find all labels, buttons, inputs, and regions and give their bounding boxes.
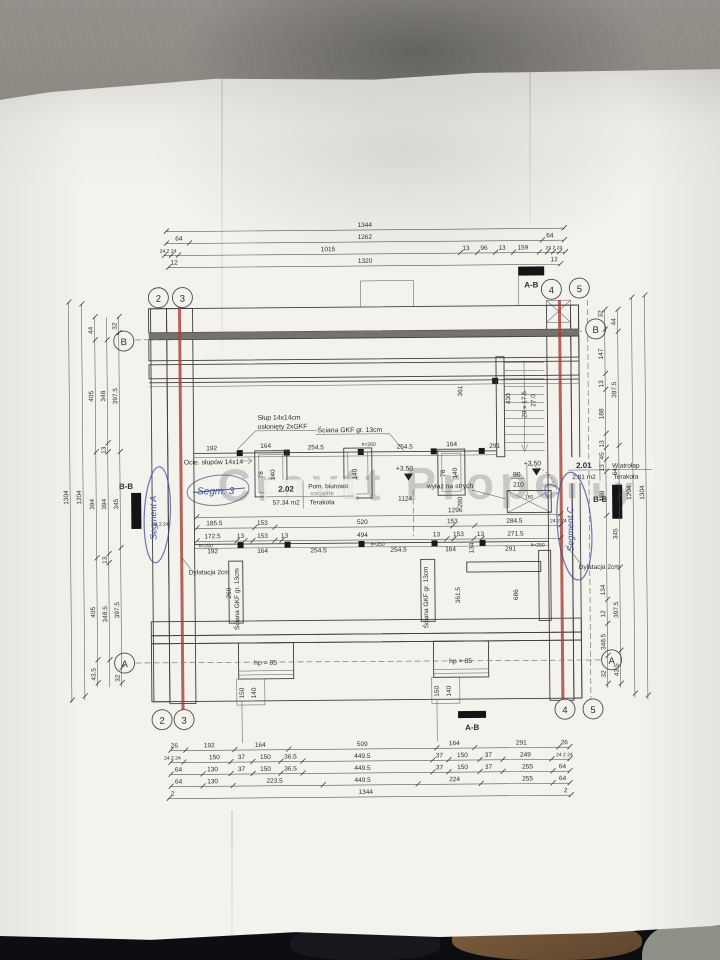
dim: 37 <box>436 764 444 771</box>
dim: 397.5 <box>114 602 121 619</box>
window-dim: 140 <box>251 687 258 698</box>
dim: 150 <box>260 766 271 773</box>
room-area: 57.34 m2 <box>273 500 301 507</box>
dim: 1015 <box>321 246 336 253</box>
bottom-window-2: hp = 85 150 140 <box>431 641 489 703</box>
door-width: 90 <box>513 472 521 479</box>
dim: 449.5 <box>354 777 371 784</box>
dim: 13 <box>101 446 108 454</box>
dim: 13 <box>599 464 606 472</box>
dim: 130 <box>207 766 218 773</box>
dim: 64 <box>175 779 183 786</box>
dim: 1320 <box>358 258 373 265</box>
dim: 255 <box>522 763 533 770</box>
dim: 96 <box>480 245 488 252</box>
dim: 291 <box>505 546 516 553</box>
dim: 397.5 <box>112 388 119 405</box>
callout-leader <box>316 434 404 452</box>
corridor-wall <box>151 618 581 636</box>
roof-hatch-outline <box>360 281 413 307</box>
dim: 394 <box>89 499 96 510</box>
dim: 284.5 <box>506 518 523 525</box>
dim: 64 <box>546 232 554 239</box>
grid-bubble-3: 3 <box>180 294 185 305</box>
dim: 271.5 <box>507 531 524 538</box>
dim: 394 <box>101 498 108 509</box>
attic-hatch-callout: wyłaz na strych <box>426 483 474 490</box>
dim: 1262 <box>358 234 373 241</box>
dim: 188 <box>598 408 605 419</box>
dilatation-callout-right: Dylatacja 2cm <box>579 564 620 571</box>
dim: 405 <box>90 606 97 617</box>
insulation-callout: Ocie. słupów 14x14 <box>184 459 244 467</box>
grid-bubble-A: A <box>121 659 128 670</box>
column-callout-line1: Słup 14x14cm <box>257 415 300 422</box>
room-table-202: 2.02 57.34 m2 Pom. biurowo socjalne Tera… <box>264 479 356 509</box>
dim: 164 <box>257 548 268 555</box>
handwriting-segment-c: Segment C <box>565 506 575 552</box>
dim: 397.5 <box>611 381 618 398</box>
dim: 26 <box>561 739 569 746</box>
dim: 1304 <box>63 490 70 505</box>
stair-tread-label: 27.0 <box>530 394 537 407</box>
dim: 130 <box>207 778 218 785</box>
window-dim: 150 <box>434 686 441 697</box>
dim: 150 <box>209 754 220 761</box>
dim: 397.5 <box>613 601 620 618</box>
gkf-wall-callout: Ściana GKF gr. 13cm <box>318 425 383 435</box>
dim: 2 <box>564 787 568 794</box>
dim: 153 <box>447 518 458 525</box>
dim: 13 <box>102 556 109 564</box>
window-dim: 150 <box>239 687 246 698</box>
height-note: h=260 <box>362 442 376 448</box>
level-label: +3.50 <box>524 460 541 467</box>
grid-bubble-Br: B <box>592 325 598 336</box>
v-dim: 280 <box>457 496 464 507</box>
niche-dim: 140 <box>352 468 359 479</box>
v-dim: 260 <box>226 587 233 598</box>
dim: 12 <box>550 256 558 263</box>
dim: 24 2 24 <box>160 249 177 255</box>
dim: 12 <box>600 610 607 618</box>
section-label-top: A-B <box>524 280 539 289</box>
bottom-window-1: hp = 85 150 140 <box>236 643 294 705</box>
niche-dim: 78 <box>258 471 265 479</box>
handwriting-segment-a: Segment A <box>148 496 158 540</box>
dim: 13 <box>599 440 606 448</box>
dim: 13 <box>433 531 441 538</box>
dim: 1304 <box>639 485 646 500</box>
dim: 26 <box>171 743 179 750</box>
dim: 64 <box>559 763 567 770</box>
dim: 520 <box>357 519 368 526</box>
dim: 44 <box>611 318 618 326</box>
dim: 134 <box>600 584 607 595</box>
dim: 164 <box>449 740 460 747</box>
floor-plan-drawing: Cravtt Property <box>0 0 720 960</box>
dim: 345 <box>612 528 619 539</box>
dim: 64 <box>559 775 567 782</box>
dim: 255 <box>522 775 533 782</box>
level-label: +3.50 <box>396 466 413 473</box>
lobby-wall <box>467 561 541 572</box>
dim: 164 <box>255 742 266 749</box>
height-note: h=250 <box>371 542 385 548</box>
v-dim: 361.5 <box>455 587 462 604</box>
ladder-dim: 160 <box>525 494 534 500</box>
dim: 249 <box>520 752 531 759</box>
dim: 24 2 24 <box>164 756 181 762</box>
grid-bubble-5b: 5 <box>590 705 595 716</box>
dim: 291 <box>516 740 527 747</box>
dim: 509 <box>357 741 368 748</box>
dim: 185.5 <box>206 520 223 527</box>
dim: 24 2 24 <box>556 752 573 758</box>
slab-line <box>149 383 579 387</box>
dim: 254.5 <box>397 444 414 451</box>
dim: 1344 <box>358 789 373 796</box>
window-dim: 140 <box>446 685 453 696</box>
section-bar-bottom <box>458 711 486 718</box>
niche-dim: 140 <box>270 469 277 480</box>
grid-bubble-5: 5 <box>577 284 582 295</box>
top-wall-inner-leaf <box>149 336 579 361</box>
dim: 150 <box>457 752 468 759</box>
room-number: 2.02 <box>278 485 294 494</box>
dim: 172.5 <box>204 533 221 540</box>
section-label-left: B-B <box>119 482 134 491</box>
dim: 153 <box>453 531 464 538</box>
dim: 37 <box>238 754 246 761</box>
dim: 32 <box>598 310 605 318</box>
stair-riser-label: 20 x 17.5 <box>521 391 528 418</box>
section-bar-top <box>518 266 544 275</box>
dim: 44 <box>88 326 95 334</box>
dim: 13 <box>477 531 485 538</box>
dim: 43.5 <box>91 668 98 681</box>
dim: 12 <box>170 260 178 267</box>
dim: 348.5 <box>600 633 607 650</box>
dim: 164 <box>445 546 456 553</box>
dim: 13 <box>498 245 506 252</box>
dim: 164 <box>446 441 457 448</box>
dim: 64 <box>175 767 183 774</box>
dim: 1124 <box>398 496 412 503</box>
dim: 37 <box>485 764 493 771</box>
stair-wall <box>496 357 505 457</box>
callout-leader <box>238 430 318 449</box>
bottom-dimension-block: 26 192 164 509 164 291 26 24 2 24 150 37… <box>164 739 574 801</box>
room-name-2: socjalne <box>310 490 334 497</box>
dim: 13 <box>598 380 605 388</box>
dim: 36.5 <box>284 754 297 761</box>
slab-line <box>149 379 579 383</box>
dim: 159 <box>599 490 606 501</box>
dim: 36.5 <box>284 766 297 773</box>
dim: 134 <box>469 542 476 553</box>
dim: 1296 <box>448 507 463 514</box>
top-wall-screed <box>149 361 579 379</box>
dim: 348 <box>100 390 107 401</box>
dim: 1344 <box>358 222 373 229</box>
dim: 32 <box>115 674 122 682</box>
grid-bubble-4b: 4 <box>562 705 567 716</box>
dim: 2 <box>171 791 175 798</box>
dim: 192 <box>206 445 217 452</box>
dim: 147 <box>598 348 605 359</box>
grid-bubble-2: 2 <box>156 294 161 305</box>
dim: 164 <box>260 443 271 450</box>
parapet-height-label: hp = 85 <box>254 660 277 667</box>
grid-bubble-2b: 2 <box>159 716 164 727</box>
dim: 150 <box>457 764 468 771</box>
stair-dim: 430 <box>505 393 512 404</box>
dim: 254.5 <box>390 547 407 554</box>
walls: hp = 85 150 140 hp = 85 150 140 <box>148 279 582 744</box>
dim: 24 2 24 <box>546 245 563 251</box>
dim: 45 <box>599 452 606 460</box>
dim: 348.5 <box>102 606 109 623</box>
section-bar-left <box>131 493 141 529</box>
dim: 13 <box>281 533 289 540</box>
top-wall-outer-leaf <box>148 305 578 333</box>
dim: 254.5 <box>308 444 325 451</box>
top-dimension-block: 1344 64 1262 64 24 2 24 1015 13 96 13 15… <box>159 220 568 270</box>
column-callout-line2: osłonięty 2xGKF <box>258 423 308 430</box>
v-dim: 686 <box>513 589 520 600</box>
dim: 192 <box>207 548 218 555</box>
dim: 37 <box>238 766 246 773</box>
dim: 449.5 <box>354 753 371 760</box>
dim: 37 <box>436 752 444 759</box>
room-floor: Terakota <box>310 499 335 506</box>
dim: 64 <box>612 468 619 476</box>
dim: 13 <box>462 245 470 252</box>
dim: 32 <box>601 670 608 678</box>
niche-dim: 140 <box>452 467 459 478</box>
dim: 1204 <box>626 485 633 500</box>
dim: 254.5 <box>310 547 327 554</box>
dim: 43.5 <box>614 663 621 676</box>
dim: 153 <box>257 533 268 540</box>
dim: 223.5 <box>266 778 283 785</box>
dim: 192 <box>204 742 215 749</box>
grid-bubble-3b: 3 <box>181 716 186 727</box>
dim: 449.5 <box>354 765 371 772</box>
dim: 494 <box>357 532 368 539</box>
grid-bubble-4: 4 <box>549 285 554 296</box>
stair-dim: 361 <box>457 385 464 396</box>
dim: 153 <box>257 520 268 527</box>
dilatation-callout-left: Dylatacja 2cm <box>189 569 230 576</box>
dim: 150 <box>260 754 271 761</box>
dim: 37 <box>485 752 493 759</box>
bottom-wall <box>151 640 581 702</box>
door-height: 210 <box>513 482 524 489</box>
dim: 291 <box>489 443 500 450</box>
dim: 224 <box>449 776 460 783</box>
parapet-height-label: hp = 85 <box>449 658 472 665</box>
section-bar-right <box>612 485 622 519</box>
dim: 1204 <box>76 490 83 505</box>
dim: 159 <box>518 245 529 252</box>
room-number: 2.01 <box>576 461 592 470</box>
height-note: h=250 <box>531 542 545 548</box>
section-label-bottom: A-B <box>465 723 480 732</box>
grid-bubble-B: B <box>121 337 127 348</box>
left-dimension-block: 1304 1204 44 405 394 405 43.5 348 13 394… <box>61 299 125 703</box>
photo-of-floor-plan: Cravtt Property <box>0 0 720 960</box>
dim: 32 <box>112 322 119 330</box>
dim: 64 <box>175 236 183 243</box>
niche-dim: 78 <box>440 469 447 477</box>
dim: 405 <box>88 391 95 402</box>
dim: 13 <box>237 533 245 540</box>
dim: 345 <box>113 498 120 509</box>
